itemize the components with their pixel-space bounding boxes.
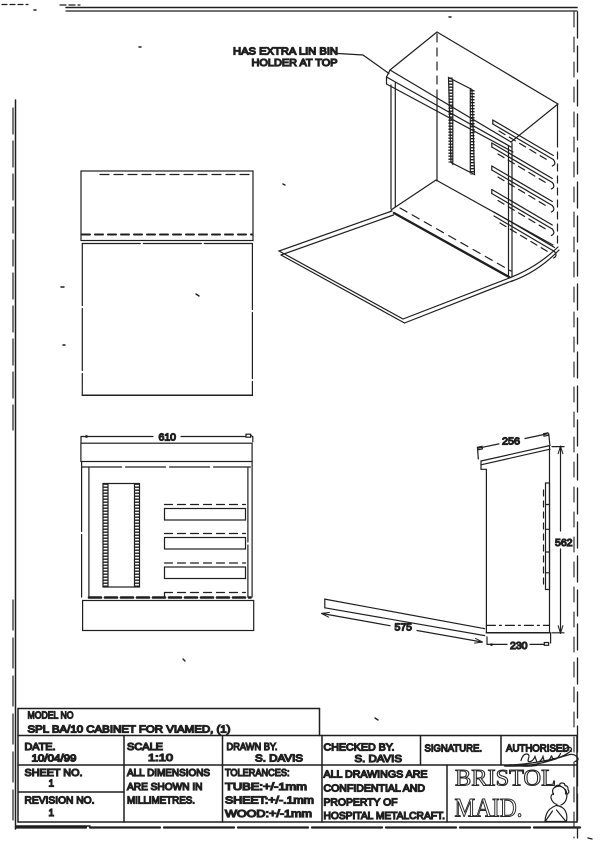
svg-text:HOSPITAL METALCRAFT.: HOSPITAL METALCRAFT.	[324, 811, 446, 822]
svg-text:AUTHORISED.: AUTHORISED.	[506, 744, 572, 755]
svg-text:HOLDER AT TOP: HOLDER AT TOP	[252, 58, 338, 69]
svg-text:610: 610	[159, 433, 177, 444]
svg-text:1: 1	[49, 779, 55, 790]
svg-text:TOLERANCES:: TOLERANCES:	[225, 768, 290, 779]
svg-text:562: 562	[555, 538, 573, 549]
svg-text:SHEET NO.: SHEET NO.	[25, 768, 83, 779]
svg-text:230: 230	[510, 641, 528, 652]
svg-text:MILLIMETRES.: MILLIMETRES.	[127, 796, 195, 807]
svg-text:SCALE: SCALE	[127, 742, 163, 753]
svg-text:1:10: 1:10	[148, 753, 174, 764]
svg-text:SHEET:+/-.1mm: SHEET:+/-.1mm	[225, 796, 314, 807]
svg-text:ALL DRAWINGS ARE: ALL DRAWINGS ARE	[324, 770, 428, 781]
svg-text:DATE.: DATE.	[25, 742, 56, 753]
svg-text:ALL DIMENSIONS: ALL DIMENSIONS	[127, 768, 210, 779]
svg-text:CONFIDENTIAL AND: CONFIDENTIAL AND	[324, 784, 426, 795]
svg-text:ARE SHOWN IN: ARE SHOWN IN	[127, 782, 203, 793]
svg-text:S. DAVIS: S. DAVIS	[355, 754, 403, 765]
svg-text:1: 1	[49, 808, 55, 819]
svg-text:SIGNATURE.: SIGNATURE.	[425, 744, 483, 755]
svg-text:BRISTOL: BRISTOL	[455, 766, 556, 791]
svg-text:DRAWN BY.: DRAWN BY.	[227, 742, 278, 753]
svg-text:256: 256	[502, 437, 520, 448]
svg-text:TUBE:+/-1mm: TUBE:+/-1mm	[225, 782, 307, 793]
svg-text:HAS EXTRA LIN BIN: HAS EXTRA LIN BIN	[233, 47, 338, 58]
svg-text:S. DAVIS: S. DAVIS	[255, 754, 303, 765]
svg-text:MAID.: MAID.	[455, 794, 523, 823]
svg-text:575: 575	[395, 623, 413, 634]
svg-text:WOOD:+/-1mm: WOOD:+/-1mm	[225, 809, 312, 820]
svg-text:CHECKED BY.: CHECKED BY.	[324, 743, 395, 754]
svg-text:REVISION NO.: REVISION NO.	[25, 796, 95, 807]
svg-text:PROPERTY OF: PROPERTY OF	[324, 798, 398, 809]
svg-text:MODEL NO: MODEL NO	[28, 711, 74, 722]
svg-text:10/04/99: 10/04/99	[32, 754, 77, 765]
svg-text:SPL BA/10 CABINET FOR VIAMED,: SPL BA/10 CABINET FOR VIAMED, (1)	[28, 725, 231, 736]
